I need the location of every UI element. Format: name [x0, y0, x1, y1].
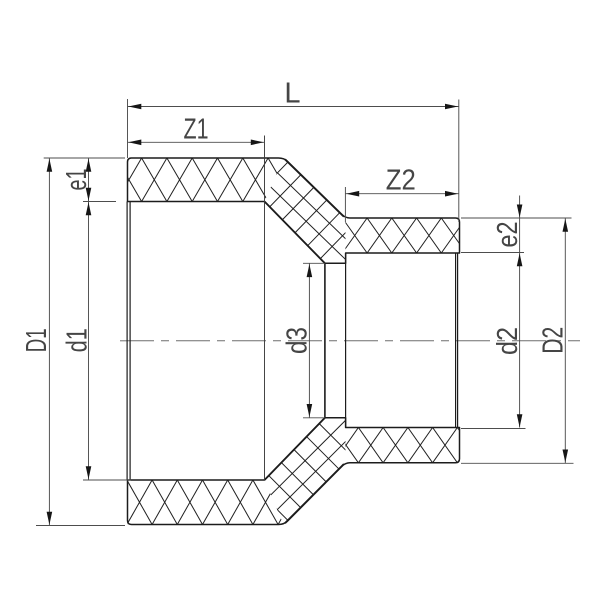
svg-text:d2: d2 [492, 327, 524, 355]
svg-text:e2: e2 [492, 222, 524, 248]
svg-text:D1: D1 [21, 328, 53, 352]
svg-text:L: L [284, 78, 300, 110]
svg-text:d3: d3 [281, 327, 313, 354]
svg-text:Z2: Z2 [386, 165, 416, 197]
svg-text:D2: D2 [537, 327, 569, 354]
svg-text:Z1: Z1 [184, 114, 209, 146]
svg-text:e1: e1 [61, 169, 93, 191]
svg-text:d1: d1 [62, 328, 94, 352]
